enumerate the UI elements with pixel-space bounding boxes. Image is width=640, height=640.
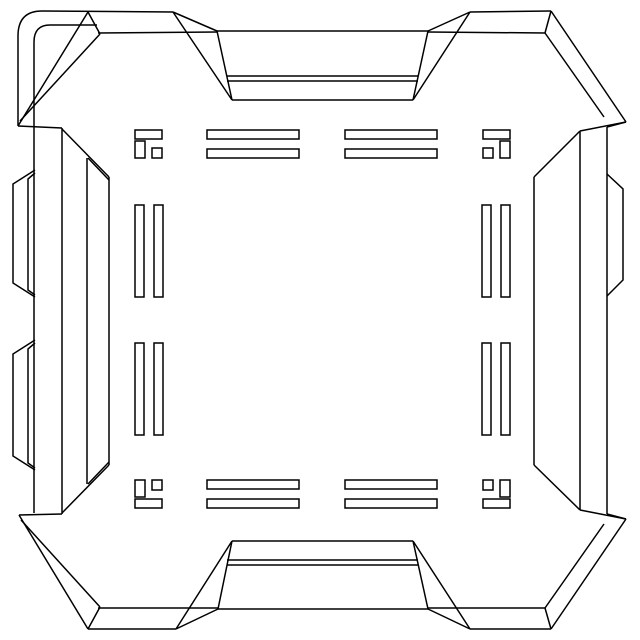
corner-bracket-slot [152,480,162,490]
hinge-bumps-left-edge [13,170,35,297]
wall-left-edge [62,129,109,177]
contact-slot-bar [482,205,491,297]
socket-line-drawing [0,0,640,640]
corner-bottom-left-chamfer-edge [21,520,100,607]
corner-top-right-chamfer-edge [545,11,551,33]
corner-top-right-chamfer-edge [470,11,551,12]
latch-tab-bottom [98,541,545,629]
latch-tab-top [98,12,545,100]
contact-slot-bar [207,499,299,508]
corner-bracket-slot [135,130,162,139]
contact-slot-bar [345,149,437,158]
corner-bracket-slot [500,141,510,158]
contact-slot-bar [501,343,510,435]
corner-bracket-slot [152,148,162,158]
corner-bottom-left-chamfer [19,514,176,629]
contact-slot-ring [135,130,510,508]
latch-bump-right [607,174,623,296]
contact-slot-bar [135,343,144,435]
wall-left-edge [88,158,109,180]
corner-bracket-slot [483,480,493,490]
wall-left [62,128,109,514]
corner-bracket-slot [483,130,510,139]
contact-slot-bar [345,499,437,508]
corner-top-left-rounded-hinge-edge [18,11,173,126]
corner-top-right-chamfer-edge [580,122,626,131]
contact-slot-bar [482,343,491,435]
wall-right [534,127,607,514]
hinge-bumps-left-edge [13,340,35,470]
hinge-bumps-left [13,170,35,470]
socket-technical-drawing-page [0,0,640,640]
corner-bottom-right-chamfer-edge [545,608,551,629]
latch-bump-right-edge [607,174,623,296]
corner-bottom-right-chamfer-edge [551,519,626,629]
corner-top-right-chamfer [470,11,626,131]
corner-bottom-right-chamfer-edge [580,510,626,519]
contact-slot-bar [154,205,163,297]
contact-slot-bar [154,343,163,435]
corner-bottom-left-chamfer-edge [88,607,100,629]
corner-bracket-slot [135,499,162,508]
corner-top-left-rounded-hinge-edge [20,34,100,121]
corner-bracket-slot [483,499,510,508]
corner-bottom-left-chamfer-edge [19,514,62,515]
contact-slot-bar [345,480,437,489]
contact-slot-bar [207,480,299,489]
corner-bracket-slot [135,141,145,158]
corner-bracket-slot [500,480,510,497]
corner-bracket-slot [135,480,145,497]
corner-bracket-slot [483,148,493,158]
corner-bottom-left-chamfer-edge [19,515,88,629]
corner-top-left-rounded-hinge-edge [18,12,88,126]
contact-slot-bar [207,149,299,158]
wall-left-edge [62,465,109,513]
corner-top-left-rounded-hinge-edge [88,12,100,34]
corner-top-right-chamfer-edge [551,11,626,122]
latch-tab-top-edge [98,32,217,33]
contact-slot-bar [501,205,510,297]
wall-right-edge [534,465,580,510]
wall-left-edge [88,462,109,484]
corner-bottom-right-chamfer [470,510,626,629]
corner-top-left-rounded-hinge-edge [18,126,62,128]
contact-slot-bar [135,205,144,297]
corner-top-left-rounded-hinge [18,11,173,513]
wall-right-edge [534,131,580,177]
contact-slot-bar [207,130,299,139]
latch-tab-top-edge [428,32,545,33]
contact-slot-bar [345,130,437,139]
